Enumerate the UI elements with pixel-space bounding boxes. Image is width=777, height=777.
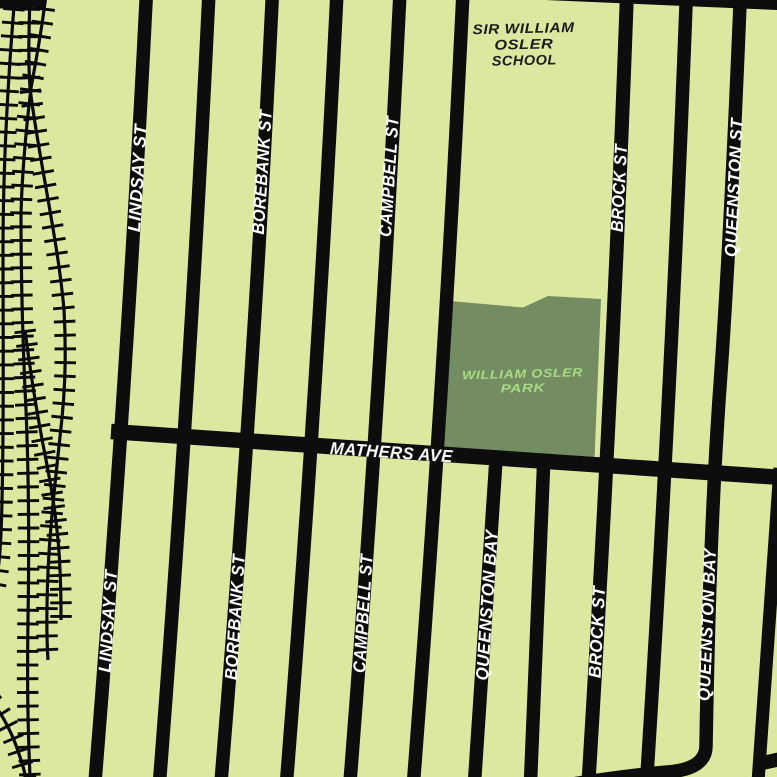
svg-text:OSLER: OSLER: [494, 35, 554, 52]
svg-text:PARK: PARK: [500, 381, 546, 396]
svg-text:SIR WILLIAM: SIR WILLIAM: [472, 19, 574, 37]
svg-text:SCHOOL: SCHOOL: [492, 51, 557, 68]
